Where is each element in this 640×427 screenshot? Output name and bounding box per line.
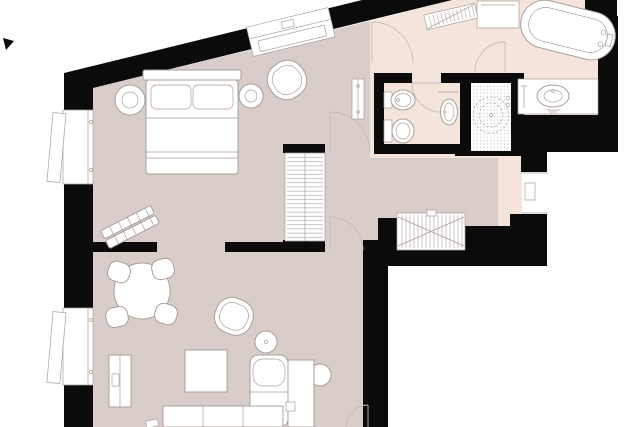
entrance-door: [522, 172, 548, 214]
wall-wardrobe-stub-bottom: [283, 240, 325, 250]
wall-below-entry-door: [510, 214, 547, 250]
shower: [471, 83, 511, 151]
wardrobe: [285, 153, 325, 241]
drawing-artifact: [3, 38, 14, 50]
window-left-lower: [47, 308, 93, 385]
wall-above-entry-door: [521, 152, 547, 172]
vanity: [518, 79, 598, 114]
floor-plan-svg: [0, 0, 640, 427]
sideboard: [109, 355, 131, 407]
nightstand-left: [115, 85, 145, 115]
bath-shelf: [477, 1, 519, 28]
wall-living-right: [363, 240, 388, 427]
side-table-right: [239, 84, 263, 108]
toilet: [384, 119, 414, 143]
coffee-table: [185, 350, 227, 392]
radiator-niche: [397, 210, 465, 250]
wall-wardrobe-stub-top: [283, 144, 325, 153]
wall-wc-top-right: [441, 73, 524, 83]
wall-below-vanity: [518, 115, 618, 152]
wall-bottom-band: [363, 250, 547, 266]
wall-shower-left: [460, 83, 471, 154]
wall-entry-flank: [465, 226, 512, 250]
daybed-bottom: [146, 406, 283, 427]
window-left-upper: [47, 110, 93, 184]
corridor-radiator: [352, 79, 364, 119]
bidet: [384, 90, 415, 110]
floor-lamp: [255, 331, 277, 353]
wall-bed-living-divider-left: [93, 242, 157, 252]
floor-plan: [0, 0, 640, 427]
wall-wc-bottom: [374, 144, 458, 154]
wall-wc-left: [374, 73, 384, 154]
double-bed: [143, 70, 241, 174]
